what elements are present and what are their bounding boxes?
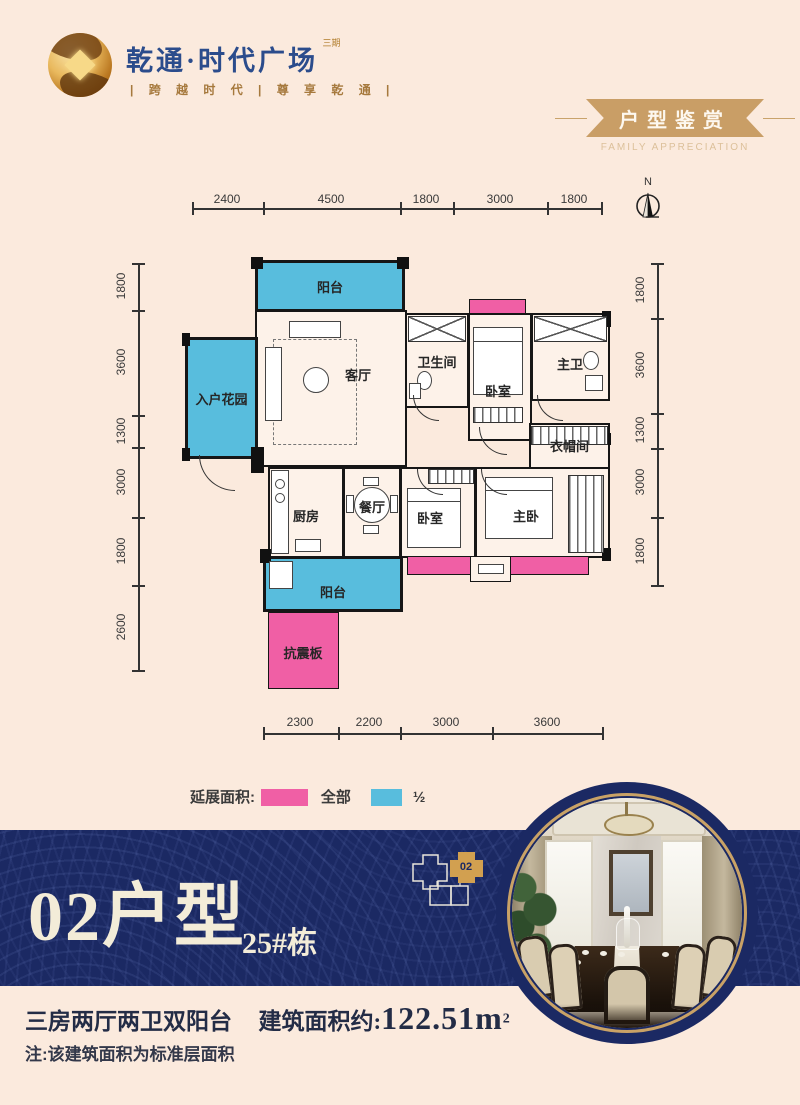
room-label: 卧室: [468, 381, 528, 400]
dim-value: 3600: [534, 715, 561, 729]
dim-value: 3000: [487, 192, 514, 206]
door-arc: [479, 427, 507, 455]
area-label: 建筑面积约:: [258, 1009, 381, 1034]
room-label: 抗震板: [269, 643, 337, 662]
dim-tick: [651, 517, 664, 519]
dim-line: [263, 733, 602, 735]
door-arc: [413, 395, 439, 421]
dim-value: 1800: [114, 538, 128, 565]
stove-burner: [275, 493, 285, 503]
dim-value: 2300: [287, 715, 314, 729]
dim-tick: [338, 727, 340, 740]
room-label: 厨房: [269, 506, 343, 525]
furniture-closet: [473, 407, 523, 423]
dim-top: 2400 4500 1800 3000 1800: [192, 192, 602, 218]
room-label: 卧室: [400, 508, 460, 527]
dim-tick: [651, 263, 664, 265]
room-label: 客厅: [345, 365, 371, 384]
dim-tick: [192, 202, 194, 215]
stove-burner: [275, 479, 285, 489]
photo-place-settings: [582, 950, 589, 955]
area-exponent: 2: [503, 1012, 510, 1027]
flower-bed-inner: [478, 564, 504, 574]
brand-tagline: | 跨 越 时 代 | 尊 享 乾 通 |: [130, 83, 395, 97]
furniture-sofa: [265, 347, 282, 421]
badge-ribbon: 户型鉴赏: [586, 99, 764, 137]
furniture-coffee-table: [303, 367, 329, 393]
dim-tick: [547, 202, 549, 215]
unit-building: 25#栋: [242, 918, 317, 962]
furniture-wardrobe-x: [408, 316, 466, 342]
photo-medallion: [496, 782, 758, 1044]
room-label: 阳台: [285, 277, 375, 296]
dim-tick: [263, 202, 265, 215]
photo-chair: [671, 943, 707, 1011]
dim-value: 2200: [356, 715, 383, 729]
dim-value: 4500: [318, 192, 345, 206]
legend-swatch-blue: [371, 789, 402, 806]
dim-line: [138, 263, 140, 670]
dim-value: 1800: [561, 192, 588, 206]
floorplan: 阳台 客厅 入户花园 卫生间 卧室 主卫 衣帽间 厨房 餐厅 卧室 主卧 阳台 …: [185, 255, 615, 695]
sink-icon: [585, 375, 603, 391]
dim-tick: [400, 202, 402, 215]
photo-chair: [547, 943, 583, 1011]
legend-swatch-pink: [261, 789, 308, 806]
brand-sphere-icon: [48, 33, 112, 97]
dim-tick: [601, 202, 603, 215]
badge-title: 户型鉴赏: [619, 104, 731, 133]
dim-value: 3600: [633, 352, 647, 379]
dim-tick: [132, 263, 145, 265]
dim-value: 3000: [633, 469, 647, 496]
dining-chair: [363, 477, 379, 486]
column: [397, 257, 409, 269]
dim-tick: [132, 670, 145, 672]
north-arrow-icon: [633, 190, 663, 222]
dim-tick: [132, 517, 145, 519]
keyplan-unit-tag: 02: [460, 861, 472, 873]
legend-full-label: 全部: [321, 789, 351, 806]
column: [182, 333, 190, 346]
keyplan-icon: 02: [403, 840, 488, 908]
dim-value: 3000: [433, 715, 460, 729]
dim-value: 3600: [114, 349, 128, 376]
dim-right: 1800 3600 1300 3000 1800: [648, 263, 674, 585]
unit-number: 02户型: [28, 860, 246, 961]
dim-tick: [602, 727, 604, 740]
door-arc: [199, 455, 235, 491]
dim-tick: [263, 727, 265, 740]
column: [251, 257, 263, 269]
dim-line: [192, 208, 602, 210]
north-label: N: [644, 176, 652, 188]
column: [251, 447, 264, 473]
dim-value: 2400: [214, 192, 241, 206]
dim-value: 1300: [633, 417, 647, 444]
dim-line: [657, 263, 659, 585]
room-label: 衣帽间: [529, 436, 610, 455]
dim-value: 1800: [114, 273, 128, 300]
flower-bed-box: [470, 556, 511, 582]
dim-value: 1800: [413, 192, 440, 206]
dim-tick: [453, 202, 455, 215]
photo-framed-art: [609, 850, 653, 916]
dining-room-photo: [512, 798, 742, 1028]
footer-summary: 三房两厅两卫双阳台 建筑面积约:122.51m2: [25, 1000, 510, 1037]
dim-tick: [400, 727, 402, 740]
photo-glass-dome: [616, 918, 640, 950]
footer-note: 注:该建筑面积为标准层面积: [25, 1040, 235, 1065]
legend: 延展面积: 全部 ½: [190, 786, 425, 808]
dim-value: 1800: [633, 277, 647, 304]
dim-tick: [492, 727, 494, 740]
room-label: 卫生间: [405, 352, 469, 371]
dim-tick: [132, 585, 145, 587]
badge-line-left: [555, 118, 587, 119]
dim-value: 2600: [114, 614, 128, 641]
room-label: 主卫: [532, 354, 608, 373]
furniture-wardrobe-x: [534, 316, 607, 342]
dim-value: 3000: [114, 469, 128, 496]
dim-tick: [651, 585, 664, 587]
dim-tick: [132, 310, 145, 312]
north-arrow: N: [633, 172, 663, 220]
column: [182, 448, 190, 461]
brand-phase-badge: 三期: [322, 39, 334, 48]
furniture-sofa: [289, 321, 341, 338]
legend-label: 延展面积:: [190, 789, 255, 806]
dim-tick: [132, 447, 145, 449]
dining-chair: [363, 525, 379, 534]
badge-subtitle: FAMILY APPRECIATION: [586, 142, 764, 153]
section-badge: 户型鉴赏 FAMILY APPRECIATION: [555, 99, 795, 154]
photo-chandelier-stem: [625, 802, 628, 816]
room-label: 阳台: [264, 582, 402, 601]
layout-description: 三房两厅两卫双阳台: [25, 1009, 232, 1034]
dim-tick: [651, 448, 664, 450]
dim-bottom: 2300 2200 3000 3600: [263, 712, 602, 738]
brand-name: 乾通·时代广场: [126, 46, 318, 76]
room-label: 入户花园: [185, 389, 258, 408]
area-value: 122.51m: [381, 1000, 503, 1036]
dim-value: 1300: [114, 418, 128, 445]
room-label: 餐厅: [344, 497, 400, 516]
photo-chandelier: [604, 814, 654, 836]
poster-page: 乾通·时代广场 三期 | 跨 越 时 代 | 尊 享 乾 通 | 户型鉴赏 FA…: [0, 0, 800, 1105]
bay-window-pink-left: [407, 556, 471, 575]
legend-half-label: ½: [413, 789, 426, 806]
dim-tick: [132, 415, 145, 417]
bay-window-pink-right: [510, 556, 589, 575]
door-arc: [537, 395, 563, 421]
photo-floor-shadow: [512, 1004, 742, 1028]
room-label: 主卧: [476, 506, 576, 525]
dim-tick: [651, 318, 664, 320]
dim-left: 1800 3600 1300 3000 1800 2600: [128, 263, 154, 670]
dim-tick: [651, 413, 664, 415]
badge-line-right: [763, 118, 795, 119]
dim-value: 1800: [633, 538, 647, 565]
kitchen-sink: [295, 539, 321, 552]
